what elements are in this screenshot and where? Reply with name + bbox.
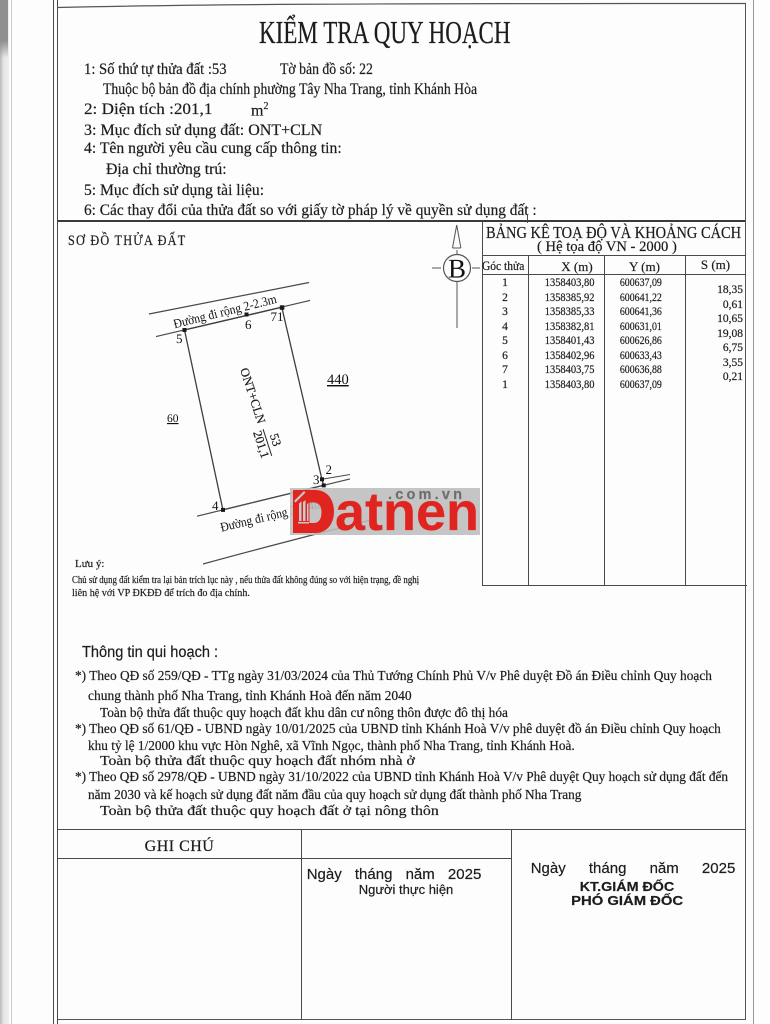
svg-text:5: 5 (176, 331, 183, 346)
svg-text:3: 3 (313, 472, 320, 487)
svg-text:60: 60 (167, 413, 179, 425)
svg-text:6: 6 (245, 317, 252, 332)
svg-text:4: 4 (212, 498, 219, 513)
svg-text:71: 71 (271, 309, 284, 324)
svg-text:B: B (448, 254, 466, 284)
svg-text:440: 440 (327, 372, 349, 388)
svg-text:2: 2 (326, 462, 333, 477)
